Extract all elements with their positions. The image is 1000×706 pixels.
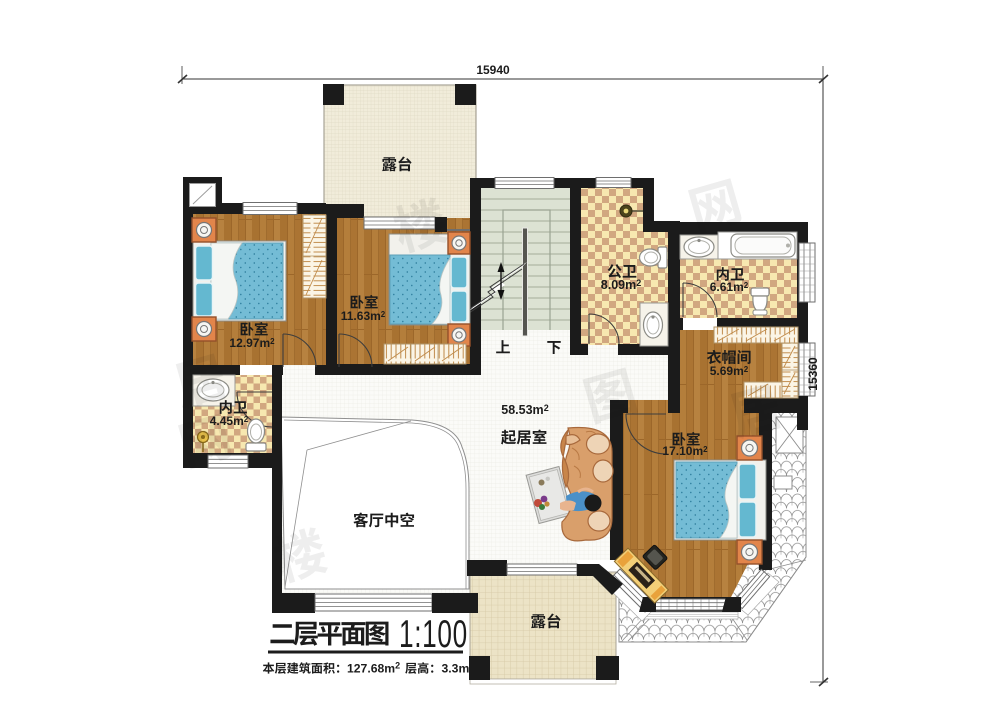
svg-text:12.97m2: 12.97m2 (229, 336, 275, 350)
svg-text:4.45m2: 4.45m2 (210, 414, 249, 428)
svg-text:17.10m2: 17.10m2 (662, 444, 708, 458)
svg-text:1:100: 1:100 (399, 612, 468, 655)
svg-text:11.63m2: 11.63m2 (341, 309, 386, 323)
svg-text:8.09m2: 8.09m2 (601, 278, 641, 292)
svg-text:3.3m: 3.3m (442, 662, 470, 676)
svg-text:127.68m2: 127.68m2 (347, 661, 400, 676)
svg-text:58.53m2: 58.53m2 (501, 403, 548, 417)
svg-text:5.69m2: 5.69m2 (710, 364, 749, 378)
svg-text:15940: 15940 (476, 63, 510, 77)
svg-text:15360: 15360 (806, 357, 820, 391)
svg-text:6.61m2: 6.61m2 (710, 280, 749, 294)
